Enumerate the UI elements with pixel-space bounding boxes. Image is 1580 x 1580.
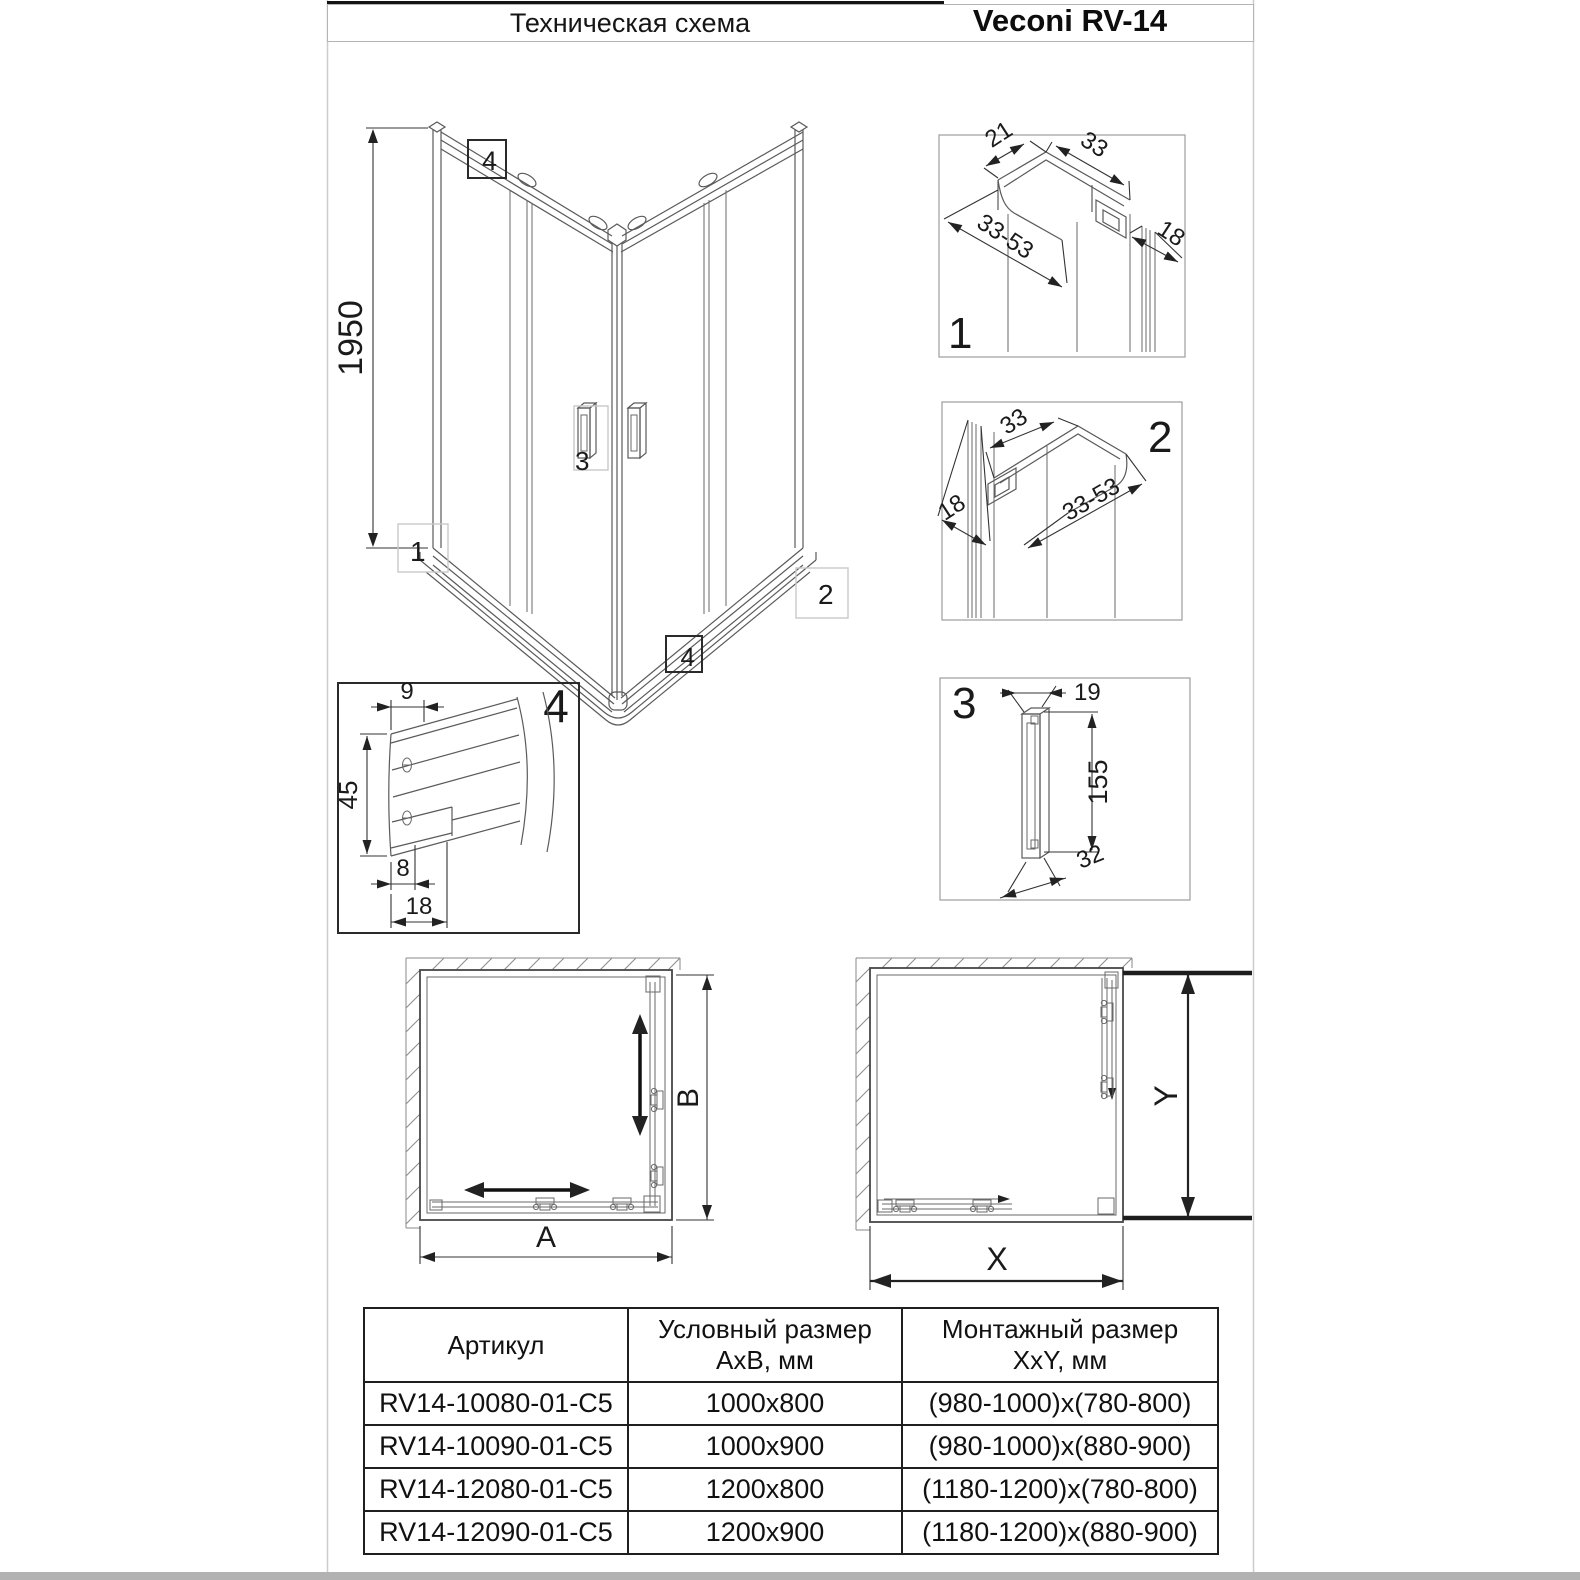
detail-4-dim-8: 8 [396, 855, 409, 882]
col-header-nominal-size: Условный размер AxB, мм [628, 1308, 902, 1382]
bottom-edge-bar [0, 1572, 1580, 1580]
callout-4-bottom: 4 [681, 642, 695, 672]
plan-left-dim-a: A [536, 1221, 556, 1254]
cell-size: 1000x800 [628, 1382, 902, 1425]
cell-size: 1000x900 [628, 1425, 902, 1468]
cell-mount: (980-1000)x(880-900) [902, 1425, 1218, 1468]
col-header-mounting-size-line2: XxY, мм [903, 1345, 1217, 1376]
brand-model-title: Veconi RV-14 [935, 3, 1205, 39]
detail-1-label: 1 [948, 309, 972, 358]
cell-article: RV14-10090-01-C5 [364, 1425, 628, 1468]
detail-2-dim-33: 33 [995, 403, 1032, 440]
page-title: Техническая схема [380, 6, 880, 40]
detail-1-dim-18: 18 [1153, 215, 1190, 252]
col-header-mounting-size-line1: Монтажный размер [903, 1314, 1217, 1345]
table-header-row: Артикул Условный размер AxB, мм Монтажны… [364, 1308, 1218, 1382]
detail-4-rail-profile: 4 9 45 8 18 [333, 678, 579, 933]
detail-1-wall-profile: 1 21 33 33-53 18 [939, 116, 1190, 358]
door-handle-right [628, 403, 646, 458]
callout-2: 2 [818, 579, 834, 610]
col-header-mounting-size: Монтажный размер XxY, мм [902, 1308, 1218, 1382]
cell-size: 1200x900 [628, 1511, 902, 1554]
detail-1-dim-33: 33 [1076, 126, 1113, 163]
table-row: RV14-10080-01-C5 1000x800 (980-1000)x(78… [364, 1382, 1218, 1425]
detail-4-dim-45: 45 [333, 781, 363, 810]
col-header-nominal-size-line2: AxB, мм [629, 1345, 901, 1376]
cell-mount: (1180-1200)x(880-900) [902, 1511, 1218, 1554]
detail-1-dim-33-53: 33-53 [972, 209, 1038, 265]
detail-4-dim-18: 18 [406, 893, 433, 920]
cell-mount: (1180-1200)x(780-800) [902, 1468, 1218, 1511]
detail-2-wall-profile: 2 33 18 33-53 [933, 402, 1182, 620]
callout-4-top: 4 [482, 146, 497, 176]
table-row: RV14-12090-01-C5 1200x900 (1180-1200)x(8… [364, 1511, 1218, 1554]
detail-3-handle: 3 19 155 32 [940, 678, 1190, 901]
detail-4-label: 4 [543, 680, 569, 732]
cell-mount: (980-1000)x(780-800) [902, 1382, 1218, 1425]
detail-3-dim-32: 32 [1073, 840, 1108, 875]
plan-right-dim-y: Y [1148, 1085, 1184, 1106]
col-header-nominal-size-line1: Условный размер [629, 1314, 901, 1345]
detail-2-label: 2 [1148, 413, 1172, 462]
height-dimension: 1950 [332, 128, 428, 548]
cell-article: RV14-10080-01-C5 [364, 1382, 628, 1425]
dim-1950: 1950 [332, 300, 370, 376]
cell-article: RV14-12090-01-C5 [364, 1511, 628, 1554]
detail-3-dim-155: 155 [1083, 759, 1113, 804]
detail-3-dim-19: 19 [1074, 679, 1101, 706]
table-row: RV14-12080-01-C5 1200x800 (1180-1200)x(7… [364, 1468, 1218, 1511]
callout-3: 3 [575, 446, 589, 476]
col-header-article: Артикул [364, 1308, 628, 1382]
main-isometric-view: 1950 4 4 1 2 3 [332, 122, 848, 725]
table-row: RV14-10090-01-C5 1000x900 (980-1000)x(88… [364, 1425, 1218, 1468]
callout-1: 1 [410, 536, 426, 567]
plan-right-dim-x: X [986, 1241, 1007, 1277]
size-spec-table: Артикул Условный размер AxB, мм Монтажны… [363, 1307, 1219, 1555]
cell-size: 1200x800 [628, 1468, 902, 1511]
plan-view-right: X Y [856, 958, 1252, 1290]
detail-3-label: 3 [952, 679, 976, 728]
plan-left-dim-b: B [672, 1088, 705, 1108]
detail-2-dim-18: 18 [933, 489, 970, 526]
cell-article: RV14-12080-01-C5 [364, 1468, 628, 1511]
plan-view-left: A B [406, 958, 714, 1264]
detail-4-dim-9: 9 [400, 678, 413, 705]
